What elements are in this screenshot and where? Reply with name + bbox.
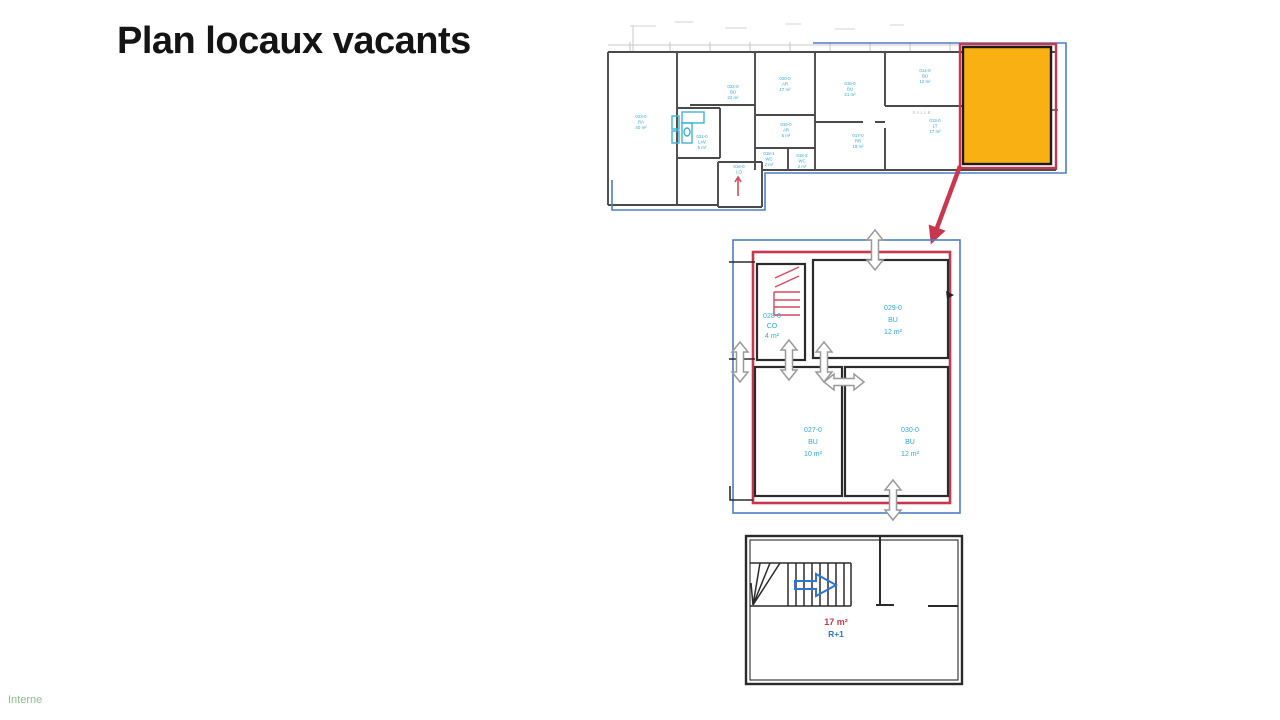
svg-text:BU: BU: [888, 317, 898, 324]
svg-text:WC: WC: [765, 157, 772, 162]
stairwell-level-label: R+1: [828, 629, 844, 639]
svg-text:021-0: 021-0: [696, 134, 708, 139]
detail-blue-boundary: [733, 240, 960, 513]
svg-text:WC: WC: [798, 159, 805, 164]
svg-text:10 m²: 10 m²: [804, 451, 823, 458]
svg-text:013-0: 013-0: [929, 118, 941, 123]
svg-text:017-0: 017-0: [852, 133, 864, 138]
svg-text:RA: RA: [638, 120, 644, 125]
svg-text:AR: AR: [782, 82, 788, 87]
svg-text:018-1: 018-1: [763, 151, 775, 156]
scan-noise: [630, 22, 904, 52]
svg-text:030-0: 030-0: [901, 427, 919, 434]
svg-text:4 m²: 4 m²: [765, 333, 780, 340]
svg-text:40 m²: 40 m²: [635, 125, 647, 130]
svg-text:BU: BU: [922, 74, 928, 79]
svg-text:LT: LT: [933, 124, 938, 129]
svg-text:BU: BU: [730, 90, 736, 95]
svg-text:21 m²: 21 m²: [844, 92, 856, 97]
detail-red-outline: [753, 252, 950, 503]
footer-classification: Interne: [8, 694, 42, 706]
svg-text:015-0: 015-0: [844, 81, 856, 86]
red-stair-mark: [735, 177, 741, 196]
svg-text:018-2: 018-2: [796, 153, 808, 158]
stairwell-floor-plan: 17 m² R+1: [740, 528, 968, 692]
svg-text:17 m²: 17 m²: [929, 129, 941, 134]
svg-text:014-0: 014-0: [919, 68, 931, 73]
svg-text:BU: BU: [808, 439, 818, 446]
svg-text:RR: RR: [855, 139, 861, 144]
svg-text:12 m²: 12 m²: [919, 79, 931, 84]
stairwell-walls: [746, 536, 962, 684]
svg-text:023-0: 023-0: [635, 114, 647, 119]
svg-text:029-0: 029-0: [884, 305, 902, 312]
svg-text:022-0: 022-0: [727, 84, 739, 89]
svg-text:2 m²: 2 m²: [798, 164, 807, 169]
stairwell-area-label: 17 m²: [824, 617, 848, 627]
svg-text:AR: AR: [783, 128, 789, 133]
svg-text:BU: BU: [905, 439, 915, 446]
svg-text:19 m²: 19 m²: [852, 144, 864, 149]
svg-text:5 m²: 5 m²: [698, 145, 707, 150]
svg-text:LO: LO: [736, 170, 742, 175]
svg-text:17 m²: 17 m²: [779, 87, 791, 92]
svg-text:22 m²: 22 m²: [727, 95, 739, 100]
svg-text:020-0: 020-0: [779, 76, 791, 81]
svg-text:LAV: LAV: [698, 140, 706, 145]
svg-text:027-0: 027-0: [804, 427, 822, 434]
svg-text:028-0: 028-0: [763, 313, 781, 320]
stair-hatch-red: [774, 267, 800, 315]
vacant-room-highlight: [963, 47, 1051, 164]
overview-floor-plan: 023-0RA40 m² 022-0BU22 m² 021-0LAV5 m² 0…: [600, 10, 1070, 218]
svg-text:12 m²: 12 m²: [884, 329, 903, 336]
svg-text:019-0: 019-0: [780, 122, 792, 127]
detail-floor-plan: 028-0CO4 m² 029-0BU12 m² 027-0BU10 m² 03…: [725, 228, 973, 530]
svg-text:016-0: 016-0: [733, 164, 745, 169]
svg-text:2 m²: 2 m²: [765, 162, 774, 167]
slide: Plan locaux vacants: [0, 0, 1280, 720]
svg-text:12 m²: 12 m²: [901, 451, 920, 458]
svg-text:5 m²: 5 m²: [782, 133, 791, 138]
faint-room-label: SALLE: [912, 110, 931, 115]
svg-text:BU: BU: [847, 87, 853, 92]
svg-text:CO: CO: [767, 323, 778, 330]
slide-title: Plan locaux vacants: [117, 20, 471, 63]
stair-direction-arrow: [795, 574, 836, 596]
